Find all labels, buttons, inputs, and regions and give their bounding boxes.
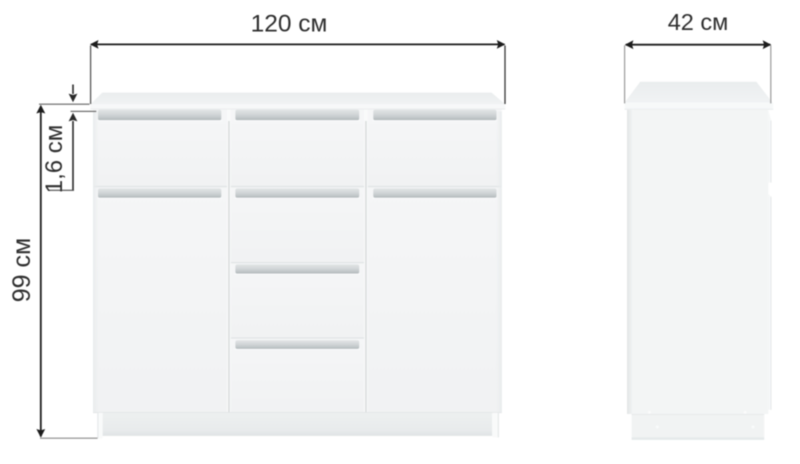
svg-text:1,6 см: 1,6 см (41, 125, 68, 194)
svg-text:120 см: 120 см (251, 11, 328, 38)
svg-text:42 см: 42 см (668, 9, 729, 35)
svg-text:99 см: 99 см (8, 238, 36, 302)
